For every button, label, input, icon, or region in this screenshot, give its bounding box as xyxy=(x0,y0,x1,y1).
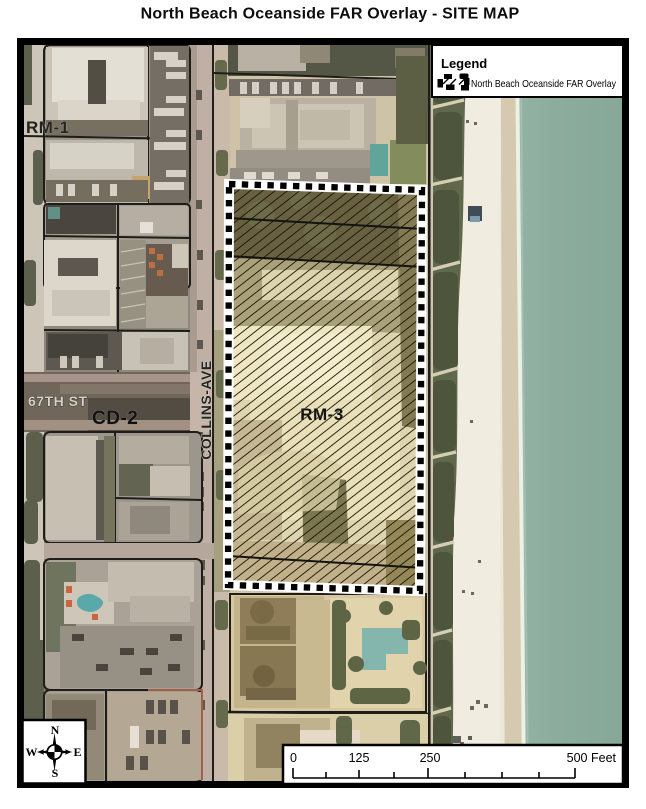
svg-text:S: S xyxy=(52,766,59,780)
svg-text:Legend: Legend xyxy=(441,56,487,71)
svg-text:0: 0 xyxy=(290,751,297,765)
svg-text:125: 125 xyxy=(349,751,370,765)
svg-text:RM-1: RM-1 xyxy=(26,118,70,137)
svg-text:N: N xyxy=(51,723,60,737)
svg-text:CD-2: CD-2 xyxy=(92,408,138,429)
svg-text:67TH ST: 67TH ST xyxy=(28,393,88,409)
svg-text:250: 250 xyxy=(420,751,441,765)
svg-text:North Beach Oceanside FAR Over: North Beach Oceanside FAR Overlay xyxy=(471,78,617,90)
svg-text:W: W xyxy=(26,745,38,759)
svg-text:North Beach Oceanside FAR Over: North Beach Oceanside FAR Overlay - SITE… xyxy=(141,6,520,23)
svg-text:RM-3: RM-3 xyxy=(300,405,344,424)
svg-text:E: E xyxy=(73,745,81,759)
svg-text:500 Feet: 500 Feet xyxy=(567,751,617,765)
svg-text:COLLINS-AVE: COLLINS-AVE xyxy=(198,360,214,459)
